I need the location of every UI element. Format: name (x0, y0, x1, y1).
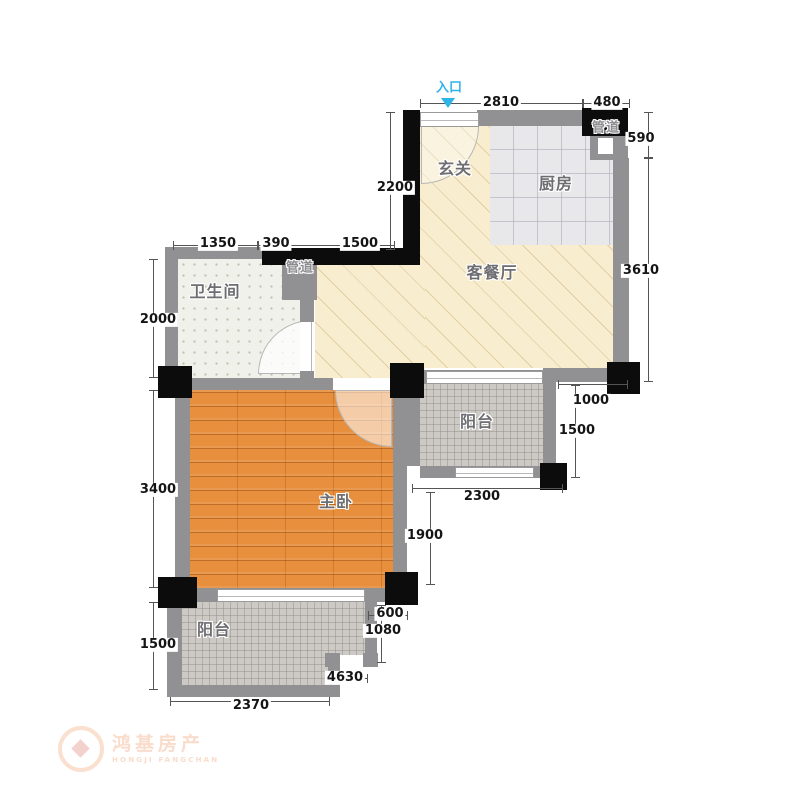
wall (543, 368, 613, 382)
room-label-duct-kitchen: 管道 (592, 117, 620, 136)
dim-line (558, 384, 628, 385)
column (385, 572, 418, 605)
room-label-living-dining: 客餐厅 (466, 259, 517, 283)
watermark-name-en: HONGJI FANGCHAN (112, 757, 219, 764)
entry-label: 入口 (436, 77, 462, 96)
room-label-bathroom: 卫生间 (189, 278, 240, 302)
wall (393, 398, 407, 572)
column (390, 363, 424, 398)
entry-arrow-icon (441, 98, 455, 108)
room-label-duct-bathroom: 管道 (286, 257, 314, 276)
dim-label: 600 (374, 607, 405, 621)
dim-label: 2370 (231, 699, 271, 713)
watermark-name-cn: 鸿基房产 (112, 735, 219, 754)
wall (325, 653, 340, 667)
dim-label: 2000 (138, 313, 178, 327)
bedroom-doorway (333, 378, 390, 390)
dim-label: 3610 (621, 264, 661, 278)
dim-label: 2300 (462, 490, 502, 504)
bedroom-balcony-window (217, 589, 365, 602)
dim-label: 3400 (138, 483, 178, 497)
room-label-kitchen: 厨房 (539, 170, 573, 194)
dim-label: 480 (591, 96, 622, 110)
dim-label: 2200 (375, 181, 415, 195)
dim-label: 1000 (571, 394, 611, 408)
floor-plan: 2810 480 590 3610 2200 1350 390 1500 200… (0, 0, 800, 800)
dim-label: 390 (260, 237, 291, 251)
dim-label: 1350 (198, 237, 238, 251)
column (607, 362, 640, 394)
living-corridor-floor (315, 265, 425, 378)
dim-label: 1080 (363, 624, 403, 638)
balcony-right-railing-window (455, 467, 534, 478)
dim-label: 1500 (138, 638, 178, 652)
dim-label: 1900 (405, 529, 445, 543)
room-label-balcony-bottom: 阳台 (197, 616, 231, 640)
dim-label: 2810 (481, 96, 521, 110)
duct-notch (598, 138, 613, 154)
column (158, 577, 197, 608)
entry-door-leaf (420, 112, 479, 127)
room-label-bedroom: 主卧 (319, 488, 353, 512)
room-label-balcony-right: 阳台 (460, 408, 494, 432)
dim-label: 1500 (340, 237, 380, 251)
wall (477, 110, 583, 126)
room-label-foyer: 玄关 (438, 155, 472, 179)
dim-label: 4630 (325, 671, 365, 685)
dim-label: 590 (625, 132, 656, 146)
living-balcony-window (426, 371, 543, 384)
dim-label: 1500 (557, 424, 597, 438)
wall (167, 685, 340, 697)
wall (363, 653, 378, 667)
watermark: 鸿基房产 HONGJI FANGCHAN (58, 726, 219, 772)
column (158, 366, 192, 398)
watermark-logo-icon (58, 726, 104, 772)
